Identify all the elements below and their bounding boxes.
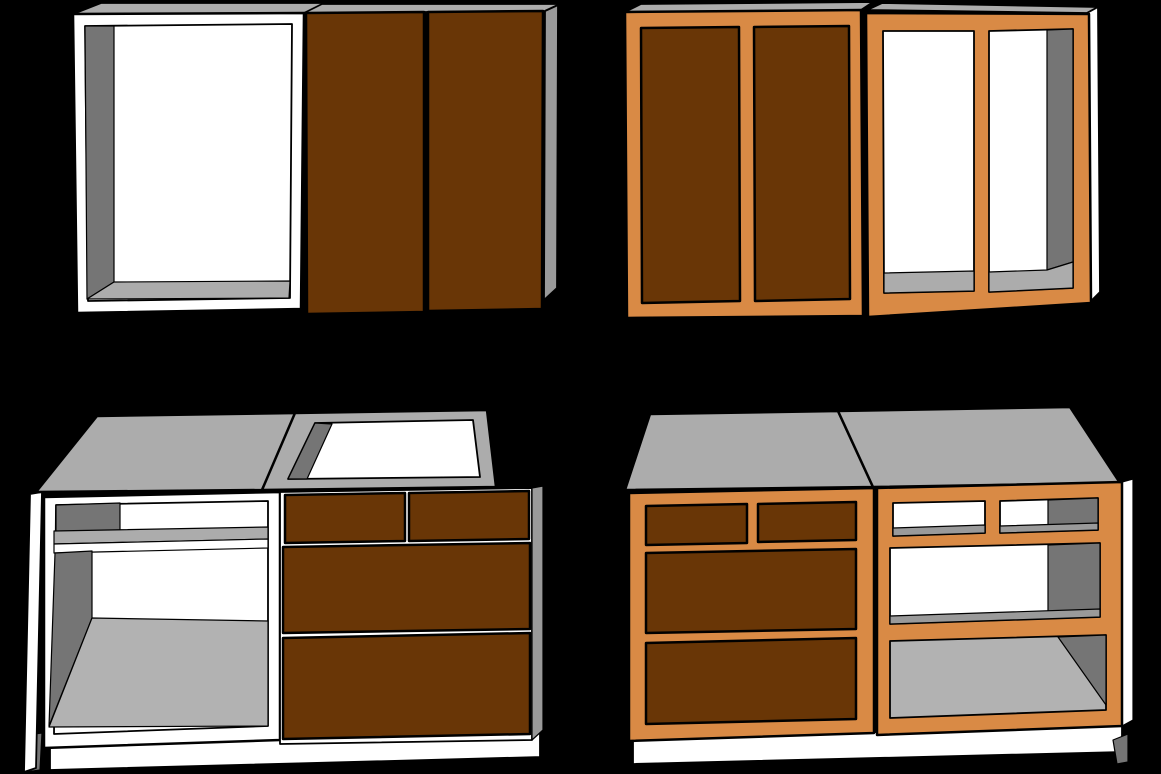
faceframe-wall-left-door-panel [641,27,740,303]
door-wall-cabinet-right-side [544,5,558,300]
faceframe-base-middle-drawer [646,549,856,633]
open-wall-cabinet-interior-bottom [87,281,290,299]
open-wall-cabinet-back-panel [85,24,292,301]
faceframe-base-open-right-edge [1122,479,1133,726]
faceframe-base-open-middle-opening-side [1048,543,1100,613]
faceframe-wall-open-right-opening-side [1047,29,1073,270]
faceframe-wall-right-door-panel [754,26,850,301]
faceframe-wall-open-left-opening-bottom-sill [884,271,974,293]
frameless-base-top-opening-left-side [56,503,120,533]
faceframe-wall-open-left-opening-back [883,31,974,293]
door-wall-cabinet-right-door [428,11,543,311]
door-wall-cabinet-left-door [306,12,424,314]
group-wall-faceframe [625,2,1100,318]
faceframe-base-top-drawer-left [646,504,747,545]
frameless-sink-base-top-drawer-left [285,493,405,543]
group-base-faceframe [625,407,1133,764]
faceframe-base-open-countertop [838,407,1120,487]
cabinet-scene-svg [0,0,1161,774]
open-wall-cabinet-interior-left-side [85,26,114,299]
faceframe-base-top-drawer-right [758,502,856,542]
frameless-sink-base-top-drawer-right [409,491,529,541]
frameless-sink-base-bottom-drawer [283,633,530,739]
frameless-sink-base-right-side [532,486,543,740]
cabinet-illustration-canvas [0,0,1161,774]
faceframe-base-bottom-drawer [646,638,856,724]
frameless-sink-base-middle-drawer [283,543,530,633]
faceframe-base-drawer-countertop [625,411,873,490]
group-base-frameless [24,410,543,772]
group-wall-frameless [73,3,560,314]
